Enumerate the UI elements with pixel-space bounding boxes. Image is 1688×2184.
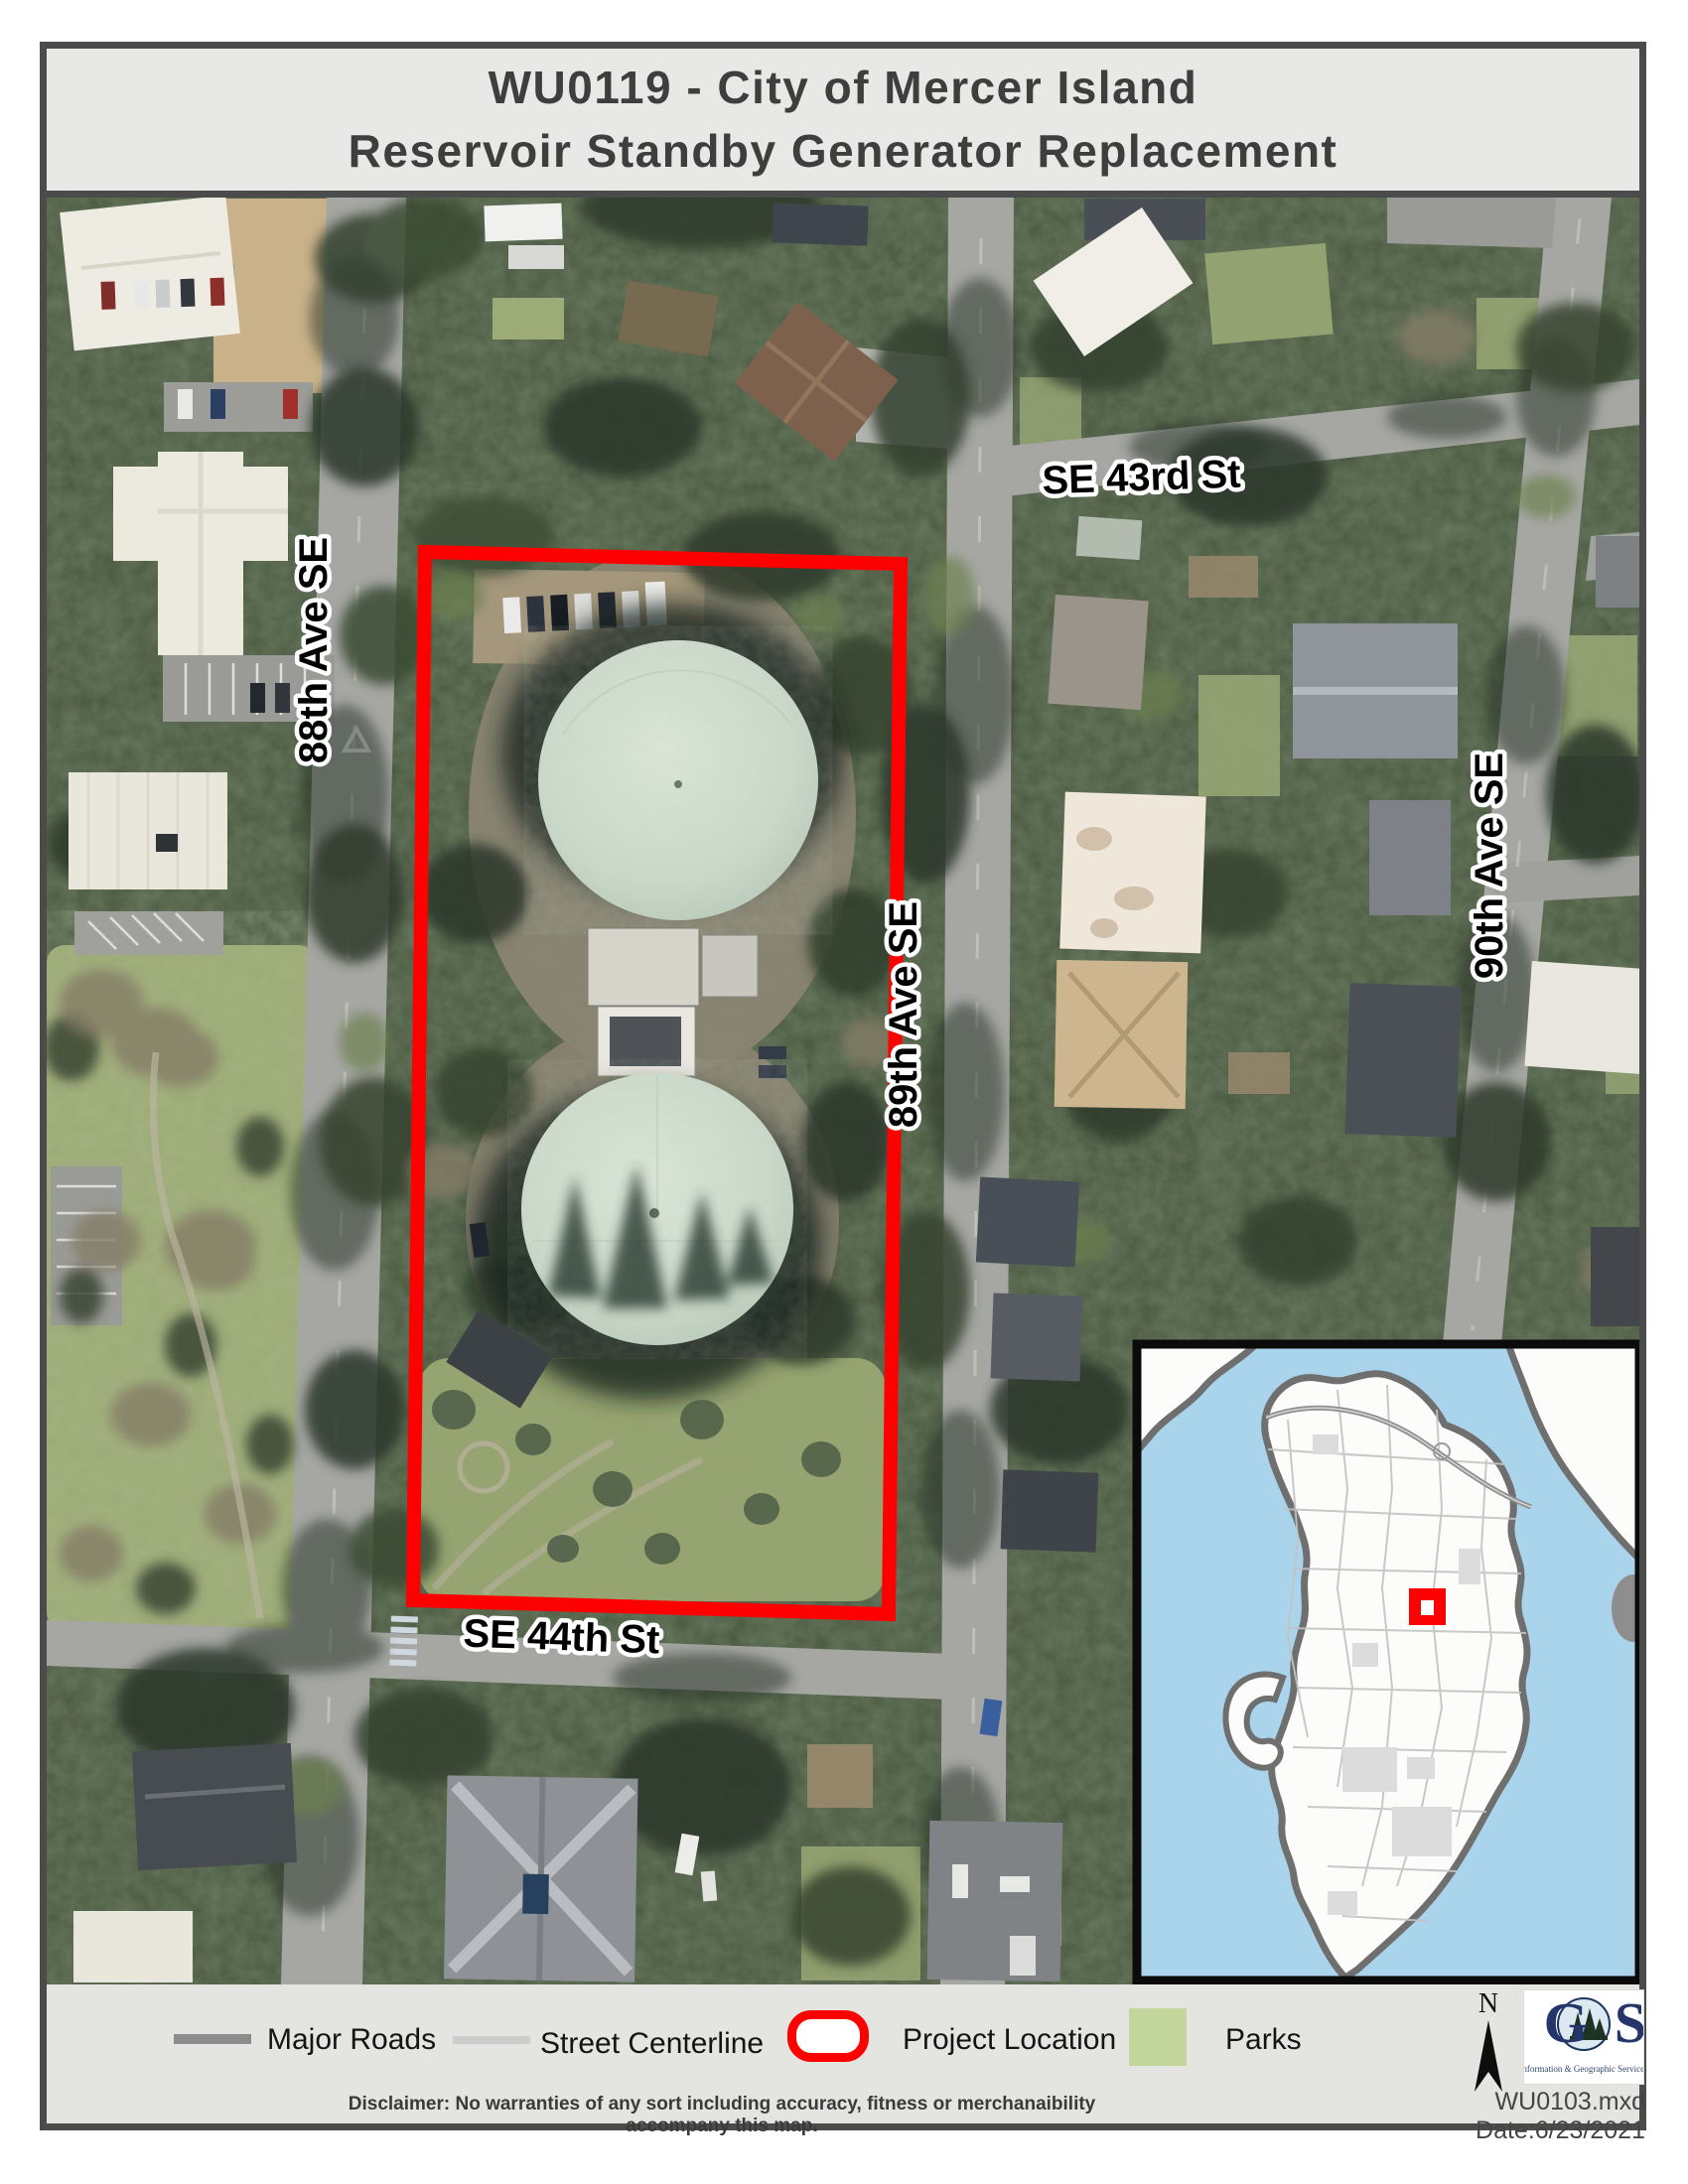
title-line-1: WU0119 - City of Mercer Island	[489, 57, 1198, 119]
map-document: WU0119 - City of Mercer Island Reservoir…	[40, 42, 1646, 2130]
igs-logo-caption: Information & Geographic Services	[1524, 2064, 1643, 2074]
page: WU0119 - City of Mercer Island Reservoir…	[0, 0, 1688, 2184]
igs-logo-acronym: IGS	[1524, 1990, 1643, 2055]
title-line-2: Reservoir Standby Generator Replacement	[349, 120, 1338, 183]
igs-logo: IGS Information & Geographic Services	[1524, 1990, 1643, 2084]
street-label-89th-ave: 89th Ave SE	[882, 901, 925, 1128]
street-label-se-44th: SE 44th St	[463, 1612, 660, 1663]
street-centerline-swatch	[453, 2036, 530, 2044]
aerial-map: SE 43rd St 88th Ave SE 89th Ave SE 90th …	[47, 198, 1639, 1984]
disclaimer-text: Disclaimer: No warranties of any sort in…	[345, 2094, 1099, 2137]
title-bar: WU0119 - City of Mercer Island Reservoir…	[47, 49, 1639, 198]
street-label-88th-ave: 88th Ave SE	[292, 537, 336, 763]
igs-logo-icon: IGS Information & Geographic Services	[1524, 1990, 1643, 2084]
street-label-90th-ave: 90th Ave SE	[1468, 752, 1511, 979]
legend-bar: Major Roads Street Centerline Project Lo…	[47, 1984, 1639, 2123]
project-location-label: Project Location	[903, 2023, 1116, 2057]
major-roads-label: Major Roads	[267, 2023, 436, 2057]
project-location-swatch	[787, 2010, 869, 2062]
street-label-se-43rd: SE 43rd St	[1042, 453, 1241, 503]
inset-locator-map	[1137, 1344, 1639, 1980]
street-centerline-label: Street Centerline	[540, 2027, 764, 2061]
north-arrow: N	[1469, 1988, 1508, 2099]
north-arrow-icon	[1473, 2020, 1504, 2094]
north-label: N	[1469, 1988, 1508, 2020]
file-date-label: WU0103.mxd Date:6/23/2021	[1395, 2088, 1645, 2145]
major-roads-swatch	[174, 2034, 251, 2044]
aerial-map-svg: SE 43rd St 88th Ave SE 89th Ave SE 90th …	[47, 198, 1639, 1984]
parks-swatch	[1129, 2008, 1187, 2066]
parks-label: Parks	[1225, 2023, 1302, 2057]
